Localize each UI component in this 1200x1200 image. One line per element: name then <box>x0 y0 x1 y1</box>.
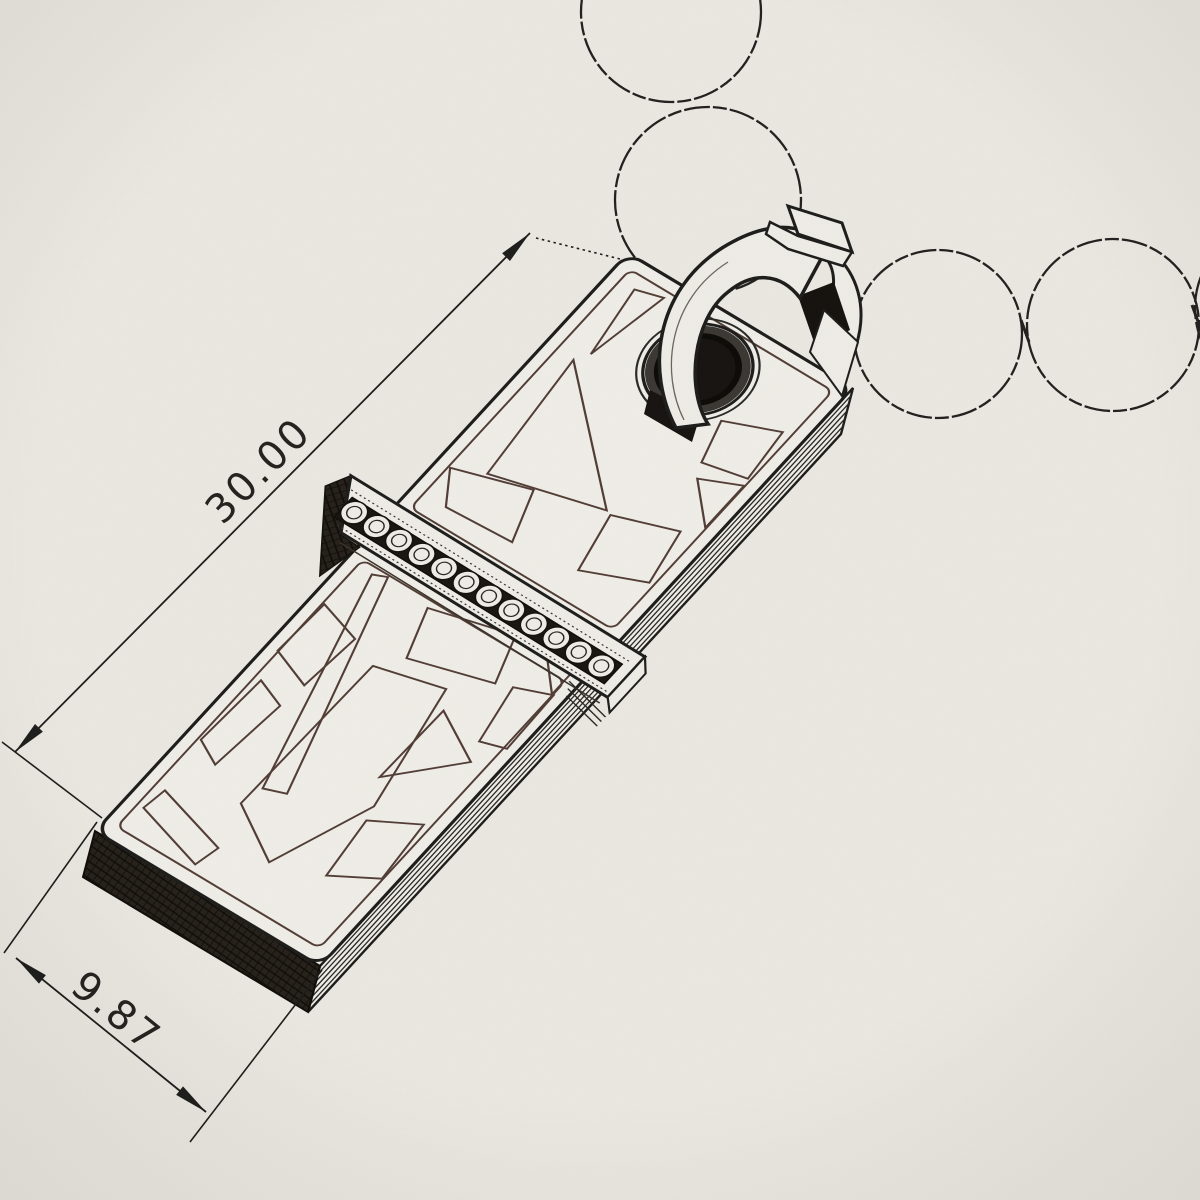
technical-drawing-canvas: 30.00 <box>0 0 1200 1200</box>
drawing-page: 30.00 <box>0 0 1200 1200</box>
vignette-overlay <box>0 0 1200 1200</box>
